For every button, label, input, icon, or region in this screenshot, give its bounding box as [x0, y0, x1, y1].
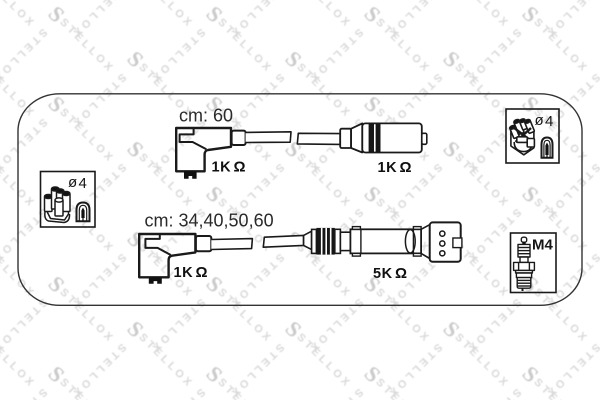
svg-text:4: 4 — [79, 175, 87, 192]
svg-text:cm: 34,40,50,60: cm: 34,40,50,60 — [145, 211, 274, 231]
svg-text:4: 4 — [545, 113, 553, 130]
svg-text:M4: M4 — [532, 237, 553, 254]
svg-text:ø: ø — [68, 174, 77, 191]
svg-text:ø: ø — [535, 112, 544, 129]
svg-text:1KΩ: 1KΩ — [174, 264, 209, 281]
svg-text:1KΩ: 1KΩ — [378, 159, 413, 176]
svg-text:cm: 60: cm: 60 — [179, 106, 233, 126]
svg-text:5KΩ: 5KΩ — [373, 265, 408, 282]
svg-text:1KΩ: 1KΩ — [212, 159, 247, 176]
